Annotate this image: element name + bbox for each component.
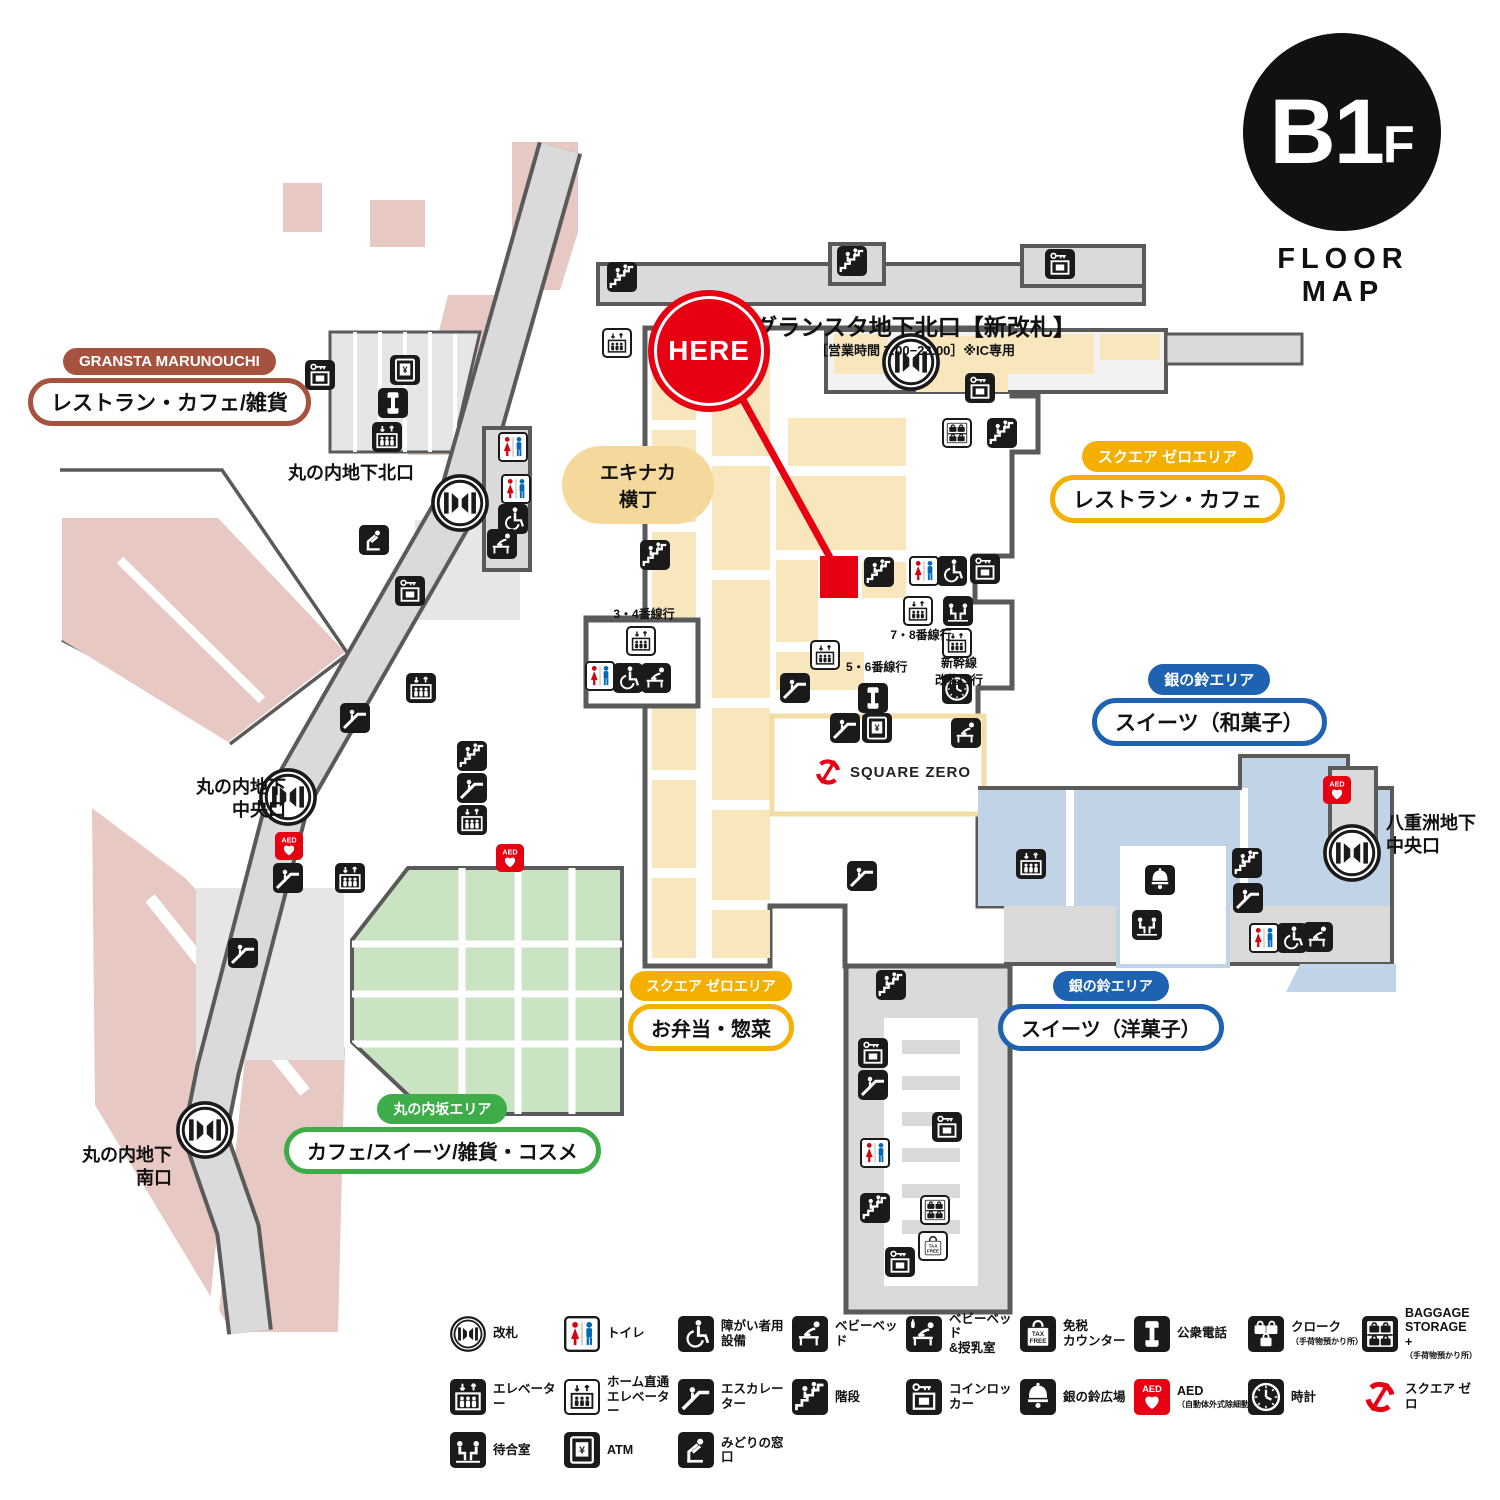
area-badge: 銀の鈴エリア	[1148, 664, 1270, 695]
area-square-zero-bento: スクエア ゼロエリア お弁当・惣菜	[628, 971, 794, 1051]
atm-icon	[564, 1432, 600, 1468]
legend-text: ベビーベッド &授乳室	[949, 1312, 1020, 1355]
midori-icon	[678, 1432, 714, 1468]
square-zero-icon	[1362, 1379, 1398, 1415]
legend-text: 障がい者用 設備	[721, 1319, 784, 1348]
legend-text: ATM	[607, 1443, 633, 1457]
legend-item-baby-bed: ベビーベッド	[792, 1306, 906, 1361]
area-category: スイーツ（和菓子）	[1092, 698, 1327, 746]
clock-icon	[1248, 1379, 1284, 1415]
floor-badge-circle: B1 F	[1243, 33, 1441, 231]
legend-item-cloak: クローク（手荷物預かり所）	[1248, 1306, 1362, 1361]
legend-label: 待合室	[493, 1443, 531, 1457]
legend-text: スクエア ゼロ	[1405, 1382, 1476, 1411]
legend-text: トイレ	[607, 1326, 645, 1340]
legend-row: 待合室ATMみどりの窓口	[450, 1432, 1500, 1468]
legend-text: エレベーター	[493, 1382, 564, 1411]
area-badge: スクエア ゼロエリア	[630, 971, 792, 1001]
legend-text: 時計	[1291, 1390, 1316, 1404]
legend-label: 改札	[493, 1326, 518, 1340]
legend-text: 階段	[835, 1390, 860, 1404]
legend: 改札トイレ障がい者用 設備ベビーベッドベビーベッド &授乳室免税 カウンター公衆…	[450, 1306, 1500, 1482]
gate-title: グランスタ地下北口【新改札】	[754, 314, 1076, 340]
legend-text: クローク（手荷物預かり所）	[1291, 1320, 1363, 1346]
legend-item-escalator: エスカレーター	[678, 1375, 792, 1418]
here-label: HERE	[668, 335, 750, 367]
square-zero-logo-text: SQUARE ZERO	[850, 764, 971, 781]
legend-text: 待合室	[493, 1443, 531, 1457]
phone-icon	[1134, 1316, 1170, 1352]
area-square-zero-restaurant: スクエア ゼロエリア レストラン・カフェ	[1050, 441, 1285, 523]
legend-text: 改札	[493, 1326, 518, 1340]
legend-item-phone: 公衆電話	[1134, 1306, 1248, 1361]
legend-label: 公衆電話	[1177, 1326, 1227, 1340]
legend-row: 改札トイレ障がい者用 設備ベビーベッドベビーベッド &授乳室免税 カウンター公衆…	[450, 1306, 1500, 1361]
legend-item-bell: 銀の鈴広場	[1020, 1375, 1134, 1418]
ekinaka-yokocho-label: エキナカ 横丁	[562, 446, 714, 524]
area-badge: スクエア ゼロエリア	[1082, 441, 1253, 472]
legend-item-atm: ATM	[564, 1432, 678, 1468]
area-marunouchi-saka: 丸の内坂エリア カフェ/スイーツ/雑貨・コスメ	[284, 1094, 601, 1174]
legend-text: 免税 カウンター	[1063, 1319, 1126, 1348]
legend-item-home-elevator: ホーム直通 エレベーター	[564, 1375, 678, 1418]
gate-label-marunouchi-south: 丸の内地下 南口	[72, 1144, 172, 1189]
toilet-icon	[564, 1316, 600, 1352]
home-elevator-icon	[564, 1379, 600, 1415]
area-category: レストラン・カフェ	[1050, 475, 1285, 523]
track-label-5-6: 5・6番線行	[846, 658, 936, 675]
gate-label-marunouchi-north: 丸の内地下北口	[288, 462, 414, 485]
legend-label: クローク	[1291, 1320, 1363, 1334]
legend-text: ホーム直通 エレベーター	[607, 1375, 678, 1418]
legend-label: ベビーベッド	[835, 1319, 906, 1348]
gate-label-marunouchi-central: 丸の内地下 中央口	[130, 776, 286, 821]
floor-level-suffix: F	[1383, 115, 1415, 175]
area-badge: 丸の内坂エリア	[377, 1094, 507, 1124]
legend-label: 免税 カウンター	[1063, 1319, 1126, 1348]
cloak-icon	[1248, 1316, 1284, 1352]
area-category: お弁当・惣菜	[628, 1004, 794, 1051]
stairs-icon	[792, 1379, 828, 1415]
area-badge: GRANSTA MARUNOUCHI	[63, 348, 276, 375]
legend-item-wheelchair: 障がい者用 設備	[678, 1306, 792, 1361]
legend-item-waiting: 待合室	[450, 1432, 564, 1468]
legend-label: コインロッカー	[949, 1382, 1020, 1411]
legend-label: 銀の鈴広場	[1063, 1390, 1126, 1404]
legend-item-stairs: 階段	[792, 1375, 906, 1418]
baby-bed-icon	[792, 1316, 828, 1352]
legend-label: エレベーター	[493, 1382, 564, 1411]
legend-label: エスカレーター	[721, 1382, 792, 1411]
area-category: カフェ/スイーツ/雑貨・コスメ	[284, 1127, 601, 1174]
here-marker: HERE	[648, 290, 770, 412]
area-gransta-marunouchi: GRANSTA MARUNOUCHI レストラン・カフェ/雑貨	[28, 348, 311, 426]
floor-badge: B1 F FLOOR MAP	[1243, 33, 1443, 309]
taxfree-icon	[1020, 1316, 1056, 1352]
area-category: スイーツ（洋菓子）	[998, 1004, 1224, 1051]
legend-item-midori: みどりの窓口	[678, 1432, 792, 1468]
legend-row: エレベーターホーム直通 エレベーターエスカレーター階段コインロッカー銀の鈴広場A…	[450, 1375, 1500, 1418]
legend-item-nursing: ベビーベッド &授乳室	[906, 1306, 1020, 1361]
baggage-icon	[1362, 1316, 1398, 1352]
legend-item-aed: AED（自動体外式除細動器）	[1134, 1375, 1248, 1418]
legend-item-baggage: BAGGAGE STORAGE +（手荷物預かり所）	[1362, 1306, 1476, 1361]
legend-label: ホーム直通 エレベーター	[607, 1375, 678, 1418]
escalator-icon	[678, 1379, 714, 1415]
legend-label: BAGGAGE STORAGE +	[1405, 1306, 1477, 1349]
shinkansen-gate-label: 新幹線 改札口行	[926, 654, 992, 688]
legend-item-coin-locker: コインロッカー	[906, 1375, 1020, 1418]
floor-level: B1	[1269, 80, 1383, 185]
legend-sublabel: （手荷物預かり所）	[1291, 1336, 1363, 1347]
legend-label: ベビーベッド &授乳室	[949, 1312, 1020, 1355]
label-layer: B1 F FLOOR MAP グランスタ地下北口【新改札】 ［営業時間 7:00…	[0, 0, 1500, 1500]
wheelchair-icon	[678, 1316, 714, 1352]
area-category: レストラン・カフェ/雑貨	[28, 378, 311, 426]
area-ginnosuzu-wagashi: 銀の鈴エリア スイーツ（和菓子）	[1092, 664, 1327, 746]
legend-label: スクエア ゼロ	[1405, 1382, 1476, 1411]
legend-label: 階段	[835, 1390, 860, 1404]
track-label-7-8: 7・8番線行	[878, 626, 964, 643]
legend-item-taxfree: 免税 カウンター	[1020, 1306, 1134, 1361]
floor-map-page: B1 F FLOOR MAP グランスタ地下北口【新改札】 ［営業時間 7:00…	[0, 0, 1500, 1500]
legend-text: 公衆電話	[1177, 1326, 1227, 1340]
area-ginnosuzu-yogashi: 銀の鈴エリア スイーツ（洋菓子）	[998, 971, 1224, 1051]
legend-text: ベビーベッド	[835, 1319, 906, 1348]
aed-icon	[1134, 1379, 1170, 1415]
gate-label-yaesu-central: 八重洲地下 中央口	[1386, 812, 1500, 857]
legend-label: みどりの窓口	[721, 1436, 792, 1465]
legend-item-square-zero: スクエア ゼロ	[1362, 1375, 1476, 1418]
legend-label: ATM	[607, 1443, 633, 1457]
legend-text: みどりの窓口	[721, 1436, 792, 1465]
legend-text: BAGGAGE STORAGE +（手荷物預かり所）	[1405, 1306, 1477, 1361]
bell-icon	[1020, 1379, 1056, 1415]
legend-item-gate: 改札	[450, 1306, 564, 1361]
legend-text: エスカレーター	[721, 1382, 792, 1411]
gate-icon	[450, 1316, 486, 1352]
floor-map-caption: FLOOR MAP	[1243, 243, 1443, 309]
waiting-icon	[450, 1432, 486, 1468]
legend-label: トイレ	[607, 1326, 645, 1340]
legend-text: 銀の鈴広場	[1063, 1390, 1126, 1404]
elevator-icon	[450, 1379, 486, 1415]
legend-item-clock: 時計	[1248, 1375, 1362, 1418]
area-badge: 銀の鈴エリア	[1053, 971, 1169, 1001]
legend-item-elevator: エレベーター	[450, 1375, 564, 1418]
legend-sublabel: （手荷物預かり所）	[1405, 1350, 1477, 1361]
track-label-3-4: 3・4番線行	[596, 605, 692, 622]
legend-item-toilet: トイレ	[564, 1306, 678, 1361]
legend-label: 障がい者用 設備	[721, 1319, 784, 1348]
legend-text: コインロッカー	[949, 1382, 1020, 1411]
coin-locker-icon	[906, 1379, 942, 1415]
legend-label: 時計	[1291, 1390, 1316, 1404]
nursing-icon	[906, 1316, 942, 1352]
